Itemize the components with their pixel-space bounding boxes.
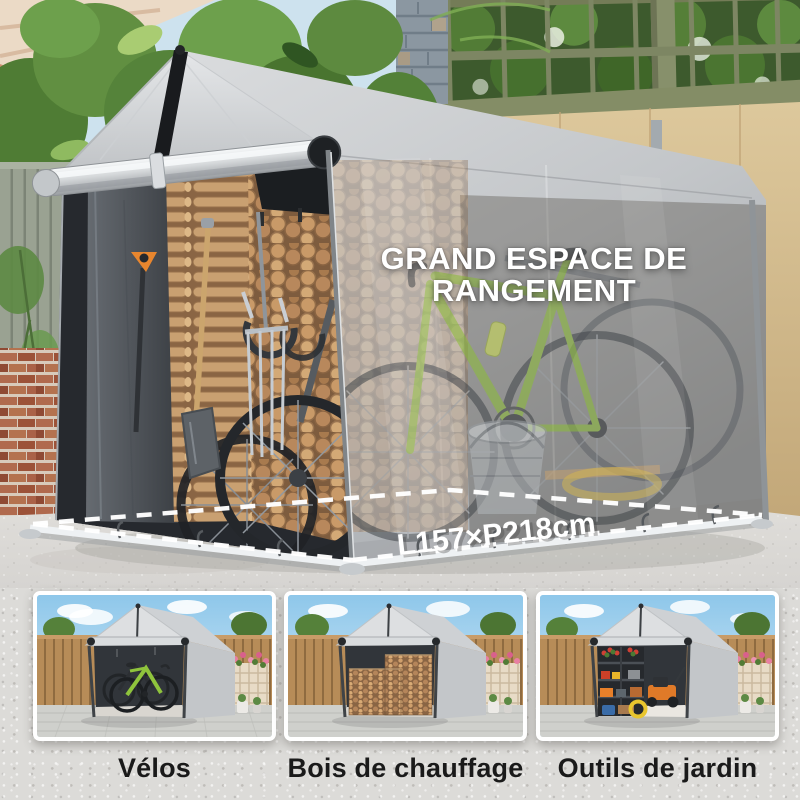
headline: GRAND ESPACE DE RANGEMENT <box>346 243 722 307</box>
product-image: L157×P218cm L157×P218cm GRAND ESPACE DE … <box>0 0 800 800</box>
headline-line2: RANGEMENT <box>346 275 722 307</box>
thumbnail-row: Vélos <box>0 591 800 800</box>
thumbnail-velos: Vélos <box>33 591 276 784</box>
thumbnail-outils: Outils de jardin <box>536 591 779 784</box>
ghosted-interior <box>322 158 766 562</box>
thumbnail-image-velos <box>33 591 276 741</box>
thumbnail-caption-bois: Bois de chauffage <box>284 753 527 784</box>
thumbnail-caption-velos: Vélos <box>33 753 276 784</box>
headline-line1: GRAND ESPACE DE <box>346 243 722 275</box>
bucket-ghost <box>468 421 546 514</box>
thumbnail-bois: Bois de chauffage <box>284 591 527 784</box>
thumbnail-caption-outils: Outils de jardin <box>536 753 779 784</box>
thumbnail-image-bois <box>284 591 527 741</box>
thumbnail-image-outils <box>536 591 779 741</box>
